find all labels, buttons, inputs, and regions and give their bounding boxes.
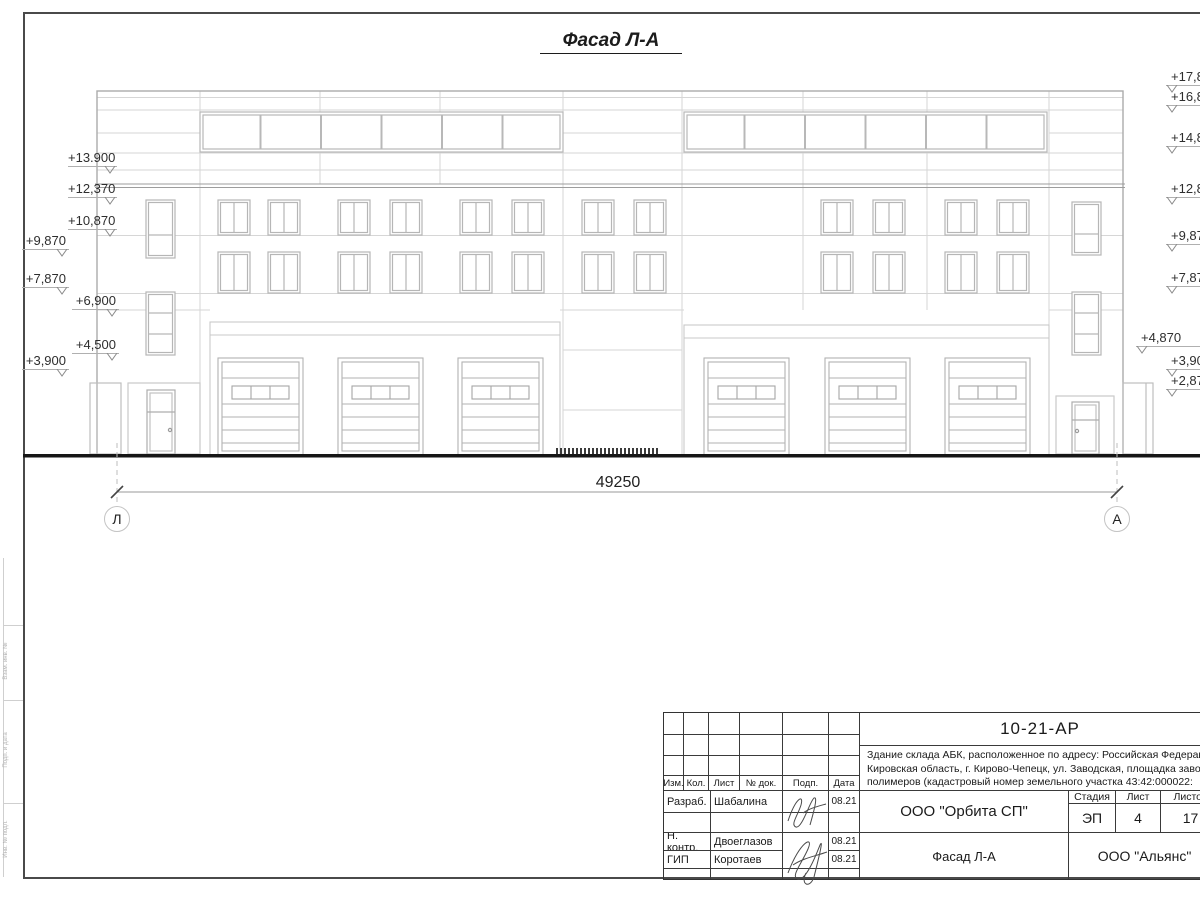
tb-header-data: Дата [829, 776, 860, 791]
elevation-mark: +2,870 [1166, 373, 1200, 390]
elevation-label: +16,870 [1171, 89, 1200, 104]
tb-header-kol: Кол. [684, 776, 709, 791]
elevation-label: +9,870 [1171, 228, 1200, 243]
tb-signature-cell [783, 791, 829, 813]
elevation-mark: +10,870 [68, 213, 117, 230]
tb-line [664, 734, 860, 735]
elevation-label: +4,500 [76, 337, 116, 352]
elevation-check-icon [56, 369, 68, 377]
elevation-label: +6,900 [76, 293, 116, 308]
elevation-mark: +16,870 [1166, 89, 1200, 106]
elevation-label: +4,870 [1141, 330, 1181, 345]
elevation-mark: +12,870 [1166, 181, 1200, 198]
garage-door [338, 358, 423, 455]
elevation-check-icon [104, 229, 116, 237]
elevation-label: +3,900 [1171, 353, 1200, 368]
elevation-check-icon [56, 249, 68, 257]
elevation-label: +2,870 [1171, 373, 1200, 388]
tb-change-col [709, 713, 740, 776]
elevation-mark: +4,500 [72, 337, 119, 354]
tb-empty-cell [711, 869, 783, 879]
tb-header-list: Лист [709, 776, 740, 791]
garage-doors [218, 358, 1030, 455]
tb-sheets-label: Листов [1161, 791, 1200, 804]
tb-empty-cell [783, 869, 829, 879]
elevation-check-icon [106, 353, 118, 361]
tb-header-izm: Изм. [664, 776, 684, 791]
garage-door [825, 358, 910, 455]
garage-door [218, 358, 303, 455]
elevation-check-icon [1166, 244, 1178, 252]
elevation-mark: +7,870 [22, 271, 69, 288]
elevation-label: +3,900 [26, 353, 66, 368]
elevation-label: +17,870 [1171, 69, 1200, 84]
tb-header-doc: № док. [740, 776, 783, 791]
tb-empty-cell [664, 813, 711, 833]
title-block: Изм. Кол. Лист № док. Подп. Дата Разраб.… [663, 712, 1200, 880]
tb-date-razrab: 08.21 [829, 791, 860, 813]
elevation-mark: +3,900 [22, 353, 69, 370]
tb-sheet-label: Лист [1116, 791, 1161, 804]
description-line: полимеров (кадастровый номер земельного … [867, 776, 1193, 788]
tb-project-description: Здание склада АБК, расположенное по адре… [860, 746, 1200, 791]
tb-sheet-value: 4 [1116, 804, 1161, 833]
tb-sheets-value: 17 [1161, 804, 1200, 833]
elevation-check-icon [104, 197, 116, 205]
garage-door [704, 358, 789, 455]
tb-name-nkontr: Двоеглазов [711, 833, 783, 851]
garage-door [945, 358, 1030, 455]
tb-empty-cell [829, 869, 860, 879]
tb-date-gip: 08.21 [829, 851, 860, 869]
elevation-mark: +4,870 [1136, 330, 1200, 347]
tb-change-col [684, 713, 709, 776]
tb-header-podp: Подп. [783, 776, 829, 791]
tb-signature-cell [783, 833, 829, 869]
dimension-value: 49250 [596, 474, 641, 491]
elevation-mark: +7,870 [1166, 270, 1200, 287]
elevation-check-icon [56, 287, 68, 295]
elevation-mark: +3,900 [1166, 353, 1200, 370]
tb-role-razrab: Разраб. [664, 791, 711, 813]
tb-change-col [783, 713, 829, 776]
axis-markers: Л А [105, 507, 1130, 532]
tb-design-org: ООО "Орбита СП" [860, 791, 1069, 833]
tb-stage-label: Стадия [1069, 791, 1116, 804]
elevation-label: +12,870 [1171, 181, 1200, 196]
tb-empty-cell [711, 813, 783, 833]
elevation-mark: +12,370 [68, 181, 117, 198]
tb-stage-value: ЭП [1069, 804, 1116, 833]
tb-line [664, 755, 860, 756]
tb-change-col [664, 713, 684, 776]
tb-name-razrab: Шабалина [711, 791, 783, 813]
axis-label-left: Л [112, 511, 121, 527]
elevation-check-icon [1166, 389, 1178, 397]
ramp-hatch-strip [554, 448, 660, 454]
axis-label-right: А [1112, 511, 1122, 527]
garage-panels [210, 322, 1049, 455]
tb-name-gip: Коротаев [711, 851, 783, 869]
elevation-label: +9,870 [26, 233, 66, 248]
ribbon-windows [200, 112, 1047, 152]
elevation-mark: +9,870 [1166, 228, 1200, 245]
tb-role-gip: ГИП [664, 851, 711, 869]
elevation-mark: +9,870 [22, 233, 69, 250]
drawing-sheet: Взам. инв. № Подп. и дата Инв. № подл. Ф… [0, 0, 1200, 900]
garage-door [458, 358, 543, 455]
elevation-mark: +13.900 [68, 150, 117, 167]
elevation-check-icon [104, 166, 116, 174]
elevation-mark: +6,900 [72, 293, 119, 310]
window-row-lower [218, 252, 1029, 293]
window-row-upper [218, 200, 1029, 235]
elevation-check-icon [1166, 146, 1178, 154]
tb-document-code: 10-21-АР [860, 713, 1200, 746]
tb-empty-cell [783, 813, 829, 833]
elevation-check-icon [1166, 286, 1178, 294]
tb-change-col [829, 713, 860, 776]
tb-change-col [740, 713, 783, 776]
left-entrance [90, 383, 200, 454]
tb-empty-cell [829, 813, 860, 833]
elevation-label: +7,870 [1171, 270, 1200, 285]
description-line: Кировская область, г. Кирово-Чепецк, ул.… [867, 763, 1200, 775]
elevation-check-icon [1136, 346, 1148, 354]
elevation-label: +7,870 [26, 271, 66, 286]
elevation-mark: +17,870 [1166, 69, 1200, 86]
right-entrance [1056, 383, 1153, 454]
tb-role-nkontr: Н. контр. [664, 833, 711, 851]
tb-contractor: ООО "Альянс" [1069, 833, 1200, 879]
description-line: Здание склада АБК, расположенное по адре… [867, 749, 1200, 761]
elevation-label: +13.900 [68, 150, 115, 165]
tb-empty-cell [664, 869, 711, 879]
elevation-label: +10,870 [68, 213, 115, 228]
elevation-label: +14,870 [1171, 130, 1200, 145]
elevation-mark: +14,870 [1166, 130, 1200, 147]
elevation-check-icon [1166, 105, 1178, 113]
elevation-label: +12,370 [68, 181, 115, 196]
tb-drawing-title: Фасад Л-А [860, 833, 1069, 879]
elevation-check-icon [1166, 197, 1178, 205]
floor-band-line [95, 184, 1125, 188]
tb-date-nkontr: 08.21 [829, 833, 860, 851]
elevation-check-icon [106, 309, 118, 317]
